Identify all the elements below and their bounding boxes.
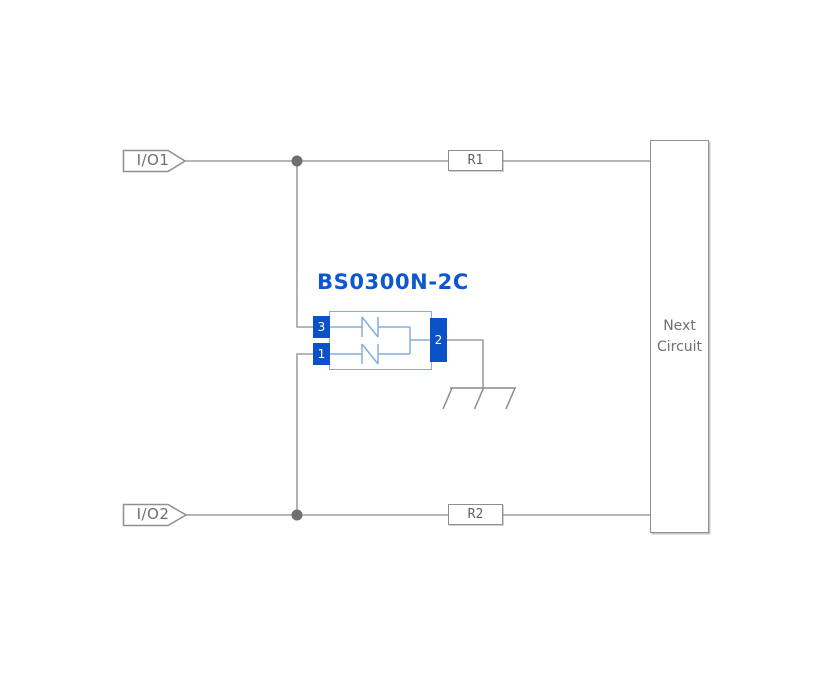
earth-ground-icon [443,388,516,409]
wire-junction1-to-pin3 [297,161,313,327]
io1-tag-label: I/O1 [123,149,183,171]
component-pin-3: 3 [313,316,330,338]
io2-tag-label: I/O2 [123,503,183,525]
circuit-diagram: I/O1 I/O2 R1 R2 Next Circuit BS0300N-2C … [0,0,832,675]
junction-dot-bottom [292,510,303,521]
component-pin-2: 2 [430,318,447,362]
wire-pin2-to-ground [447,340,483,387]
component-pin-1: 1 [313,343,330,365]
component-title: BS0300N-2C [317,270,469,296]
resistor-r2: R2 [448,504,503,525]
resistor-r1: R1 [448,150,503,171]
wire-pin1-to-junction2 [297,354,313,515]
component-body [329,311,432,370]
next-circuit-label-line2: Circuit [657,337,702,358]
next-circuit-label-line1: Next [663,316,696,337]
next-circuit-block: Next Circuit [650,140,709,533]
junction-dot-top [292,156,303,167]
